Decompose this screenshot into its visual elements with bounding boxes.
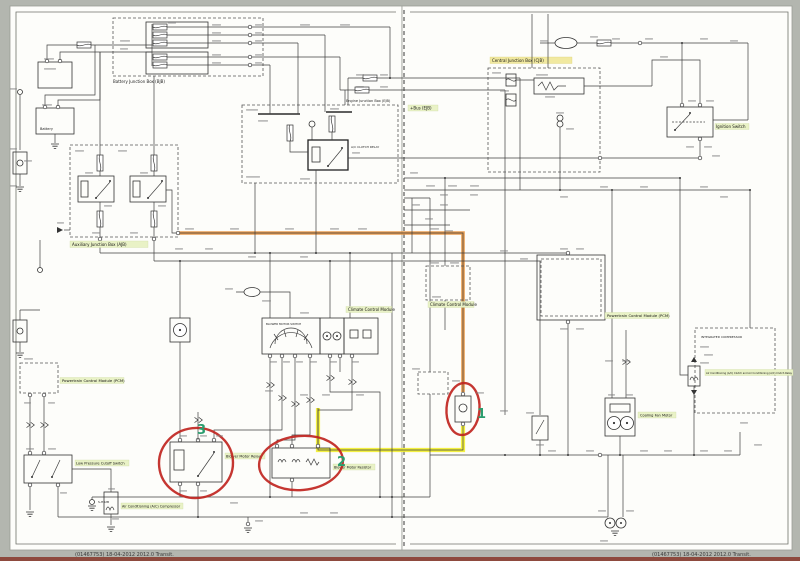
low-pressure-cutoff-switch-label: Low Pressure Cutoff Switch	[76, 462, 125, 466]
fuse-icon	[153, 24, 167, 30]
fuse-icon	[355, 87, 369, 93]
fuse-icon	[97, 155, 103, 171]
ground-code-label: S-H02B	[98, 500, 109, 504]
pcm-right-label: Powertrain Control Module (PCM)	[607, 313, 670, 318]
fuse-icon	[153, 62, 167, 68]
battery-junction-box-label: Battery Junction Box (BJB)	[113, 79, 165, 84]
marker-1: 1	[477, 407, 486, 422]
auxiliary-junction-box-label: Auxiliary Junction Box (AJB)	[72, 242, 127, 247]
fuse-icon	[363, 75, 377, 81]
fuse-icon	[77, 42, 91, 48]
battery-label: Battery	[40, 127, 53, 131]
sheet-right	[402, 6, 792, 550]
fuse-icon	[151, 155, 157, 171]
fuse-icon	[97, 211, 103, 227]
ac-clutch-long-label: Air Conditioning (A/C) Clutch and Air Co…	[706, 371, 792, 375]
central-junction-box-label: Central Junction Box (CJB)	[492, 58, 544, 63]
marker-2: 2	[337, 455, 346, 470]
footer-left: (01467753) 18-04-2012 2012.0 Transit.	[75, 552, 174, 558]
footer-right: (01467753) 18-04-2012 2012.0 Transit.	[652, 552, 751, 558]
ignition-switch-label: Ignition Switch	[716, 124, 746, 129]
fuse-icon	[329, 116, 335, 132]
blower-motor-switch-label: BLOWER MOTOR SWITCH	[266, 322, 301, 326]
fuse-icon	[153, 40, 167, 46]
motor-icon	[174, 324, 187, 337]
motor-icon	[608, 417, 621, 430]
fuse-icon	[151, 211, 157, 227]
cooling-fan-motor-label: Cooling Fan Motor	[640, 414, 673, 418]
fuse-icon	[287, 125, 293, 141]
integrated-compressor-label: INTEGRATED COMPRESSOR	[701, 335, 742, 339]
pcm-left-label: Powertrain Control Module (PCM)	[62, 378, 125, 383]
motor-icon	[621, 417, 634, 430]
fuse-icon	[153, 32, 167, 38]
ac-clutch-relay-label: A/C CLUTCH RELAY	[351, 145, 379, 149]
climate-control-module-label: Climate Control Module	[348, 307, 395, 312]
scanned-wiring-diagram: Battery Junction Box (BJB) Battery	[0, 0, 800, 561]
climate-control-module-right-label: Climate Control Module	[430, 302, 477, 307]
fuse-icon	[597, 40, 611, 46]
engine-junction-box-label: Engine Junction Box (EJB)	[346, 99, 391, 103]
fuse-icon	[153, 54, 167, 60]
bus-ejb-label: +Bus (EJB)	[410, 106, 432, 111]
diagram-canvas: Battery Junction Box (BJB) Battery	[0, 0, 800, 561]
ac-compressor-label: Air Conditioning (A/C) Compressor	[122, 505, 181, 509]
